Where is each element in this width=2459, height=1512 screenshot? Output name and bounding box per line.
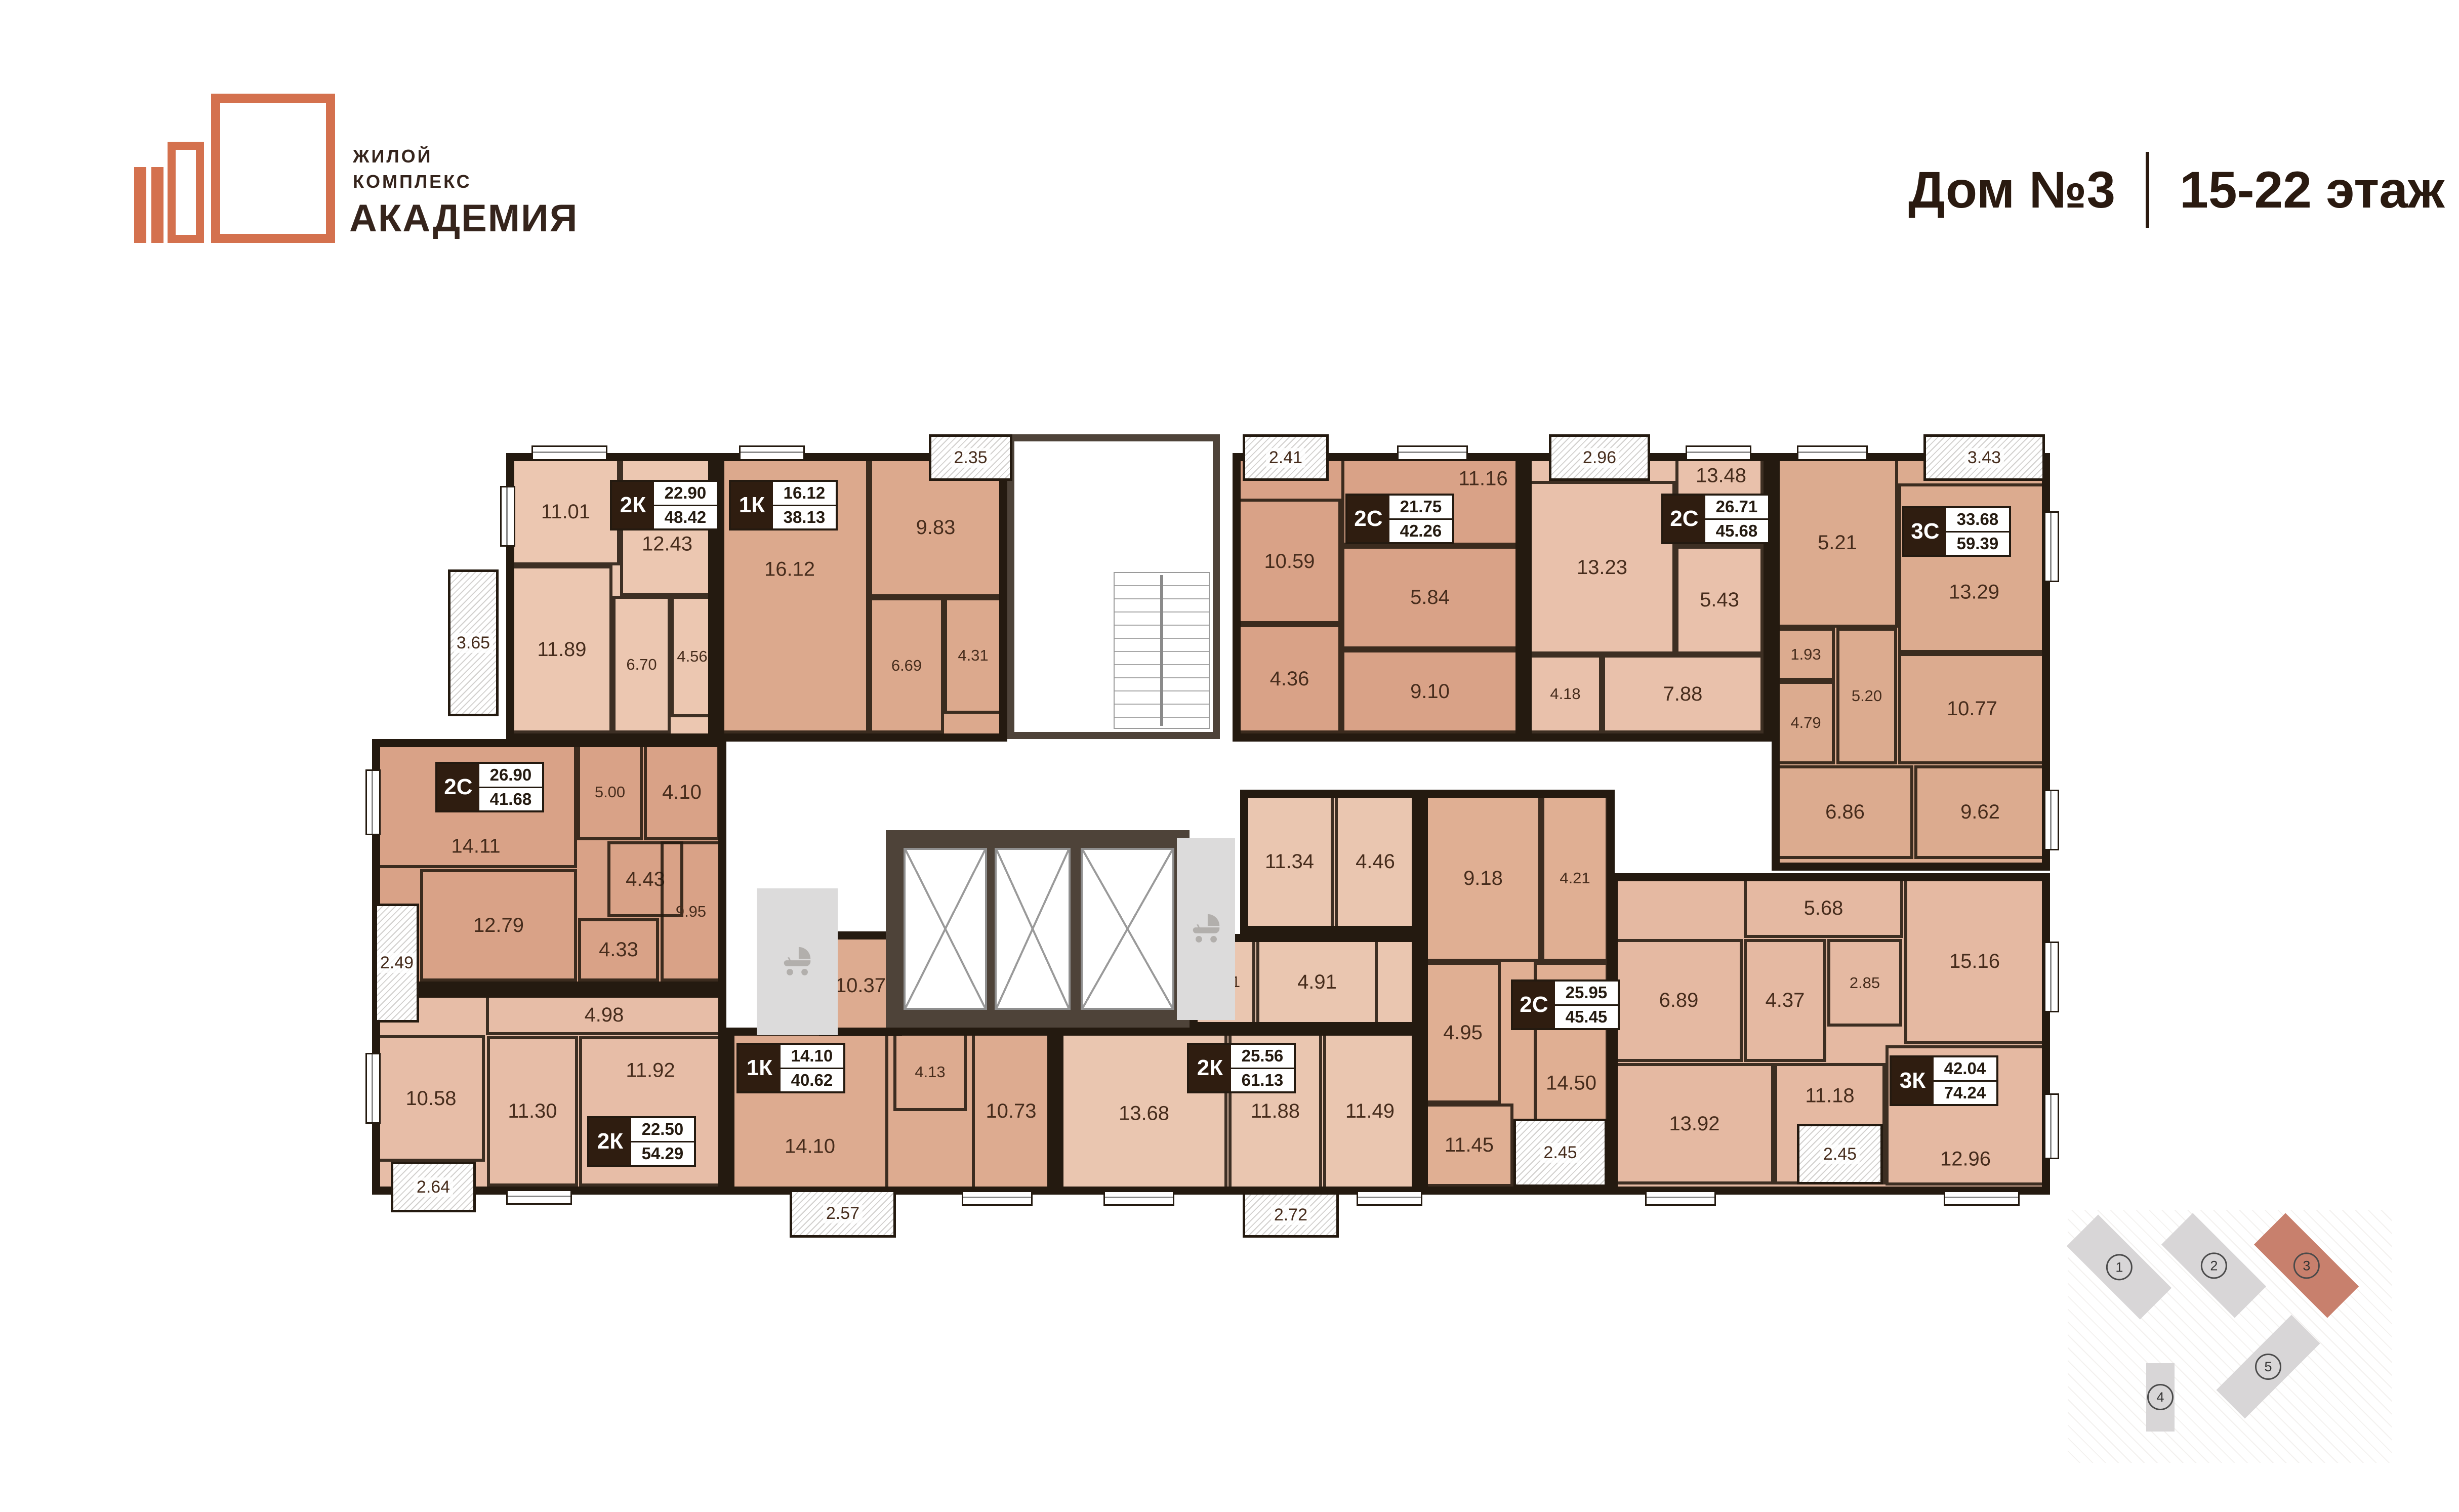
minimap-building-2[interactable]: 2 <box>2161 1213 2266 1318</box>
balcony-area-label: 2.41 <box>1266 448 1305 468</box>
window <box>962 1191 1033 1206</box>
room: 4.79 <box>1777 681 1835 764</box>
apartment-type-label: 2К <box>1189 1045 1231 1091</box>
window <box>2044 790 2059 850</box>
apartment-area-value: 22.90 <box>654 482 717 505</box>
room-area-label: 13.48 <box>1696 465 1746 487</box>
balcony-area-label: 2.49 <box>377 953 417 973</box>
apartment-type-label: 2С <box>437 764 479 810</box>
room-area-label: 10.59 <box>1264 550 1315 573</box>
room-area-label: 4.36 <box>1270 668 1309 690</box>
apartment-area-value: 41.68 <box>479 787 542 811</box>
room: 10.77 <box>1898 653 2046 764</box>
room-area-label: 11.45 <box>1445 1134 1494 1157</box>
room-area-label: 4.21 <box>1560 869 1590 887</box>
room-area-label: 13.23 <box>1577 556 1627 579</box>
room-area-label: 10.73 <box>986 1100 1036 1123</box>
apartment-type-label: 2С <box>1347 496 1389 542</box>
room-area-label: 15.16 <box>1949 950 2000 973</box>
window <box>1686 445 1751 461</box>
room-area-label: 5.84 <box>1410 586 1450 609</box>
minimap-building-number: 2 <box>2200 1252 2227 1279</box>
apartment-area-value: 74.24 <box>1934 1080 1996 1105</box>
balcony-area-label: 2.64 <box>414 1177 453 1197</box>
room-area-label: 14.10 <box>785 1135 835 1158</box>
apartment-type-label: 3С <box>1904 508 1946 555</box>
apartment-area-value: 38.13 <box>773 505 836 529</box>
room-area-label: 11.89 <box>537 638 586 661</box>
room: 9.10 <box>1341 649 1519 733</box>
stroller-zone <box>1177 838 1235 1020</box>
window <box>1797 445 1868 461</box>
room: 4.98 <box>486 995 722 1035</box>
room-area-label: 10.58 <box>405 1087 456 1110</box>
window <box>531 445 607 461</box>
room-area-label: 9.62 <box>1960 801 2000 824</box>
apartment-area-value: 26.71 <box>1705 496 1768 518</box>
window <box>365 1053 381 1124</box>
room: 10.58 <box>377 1035 485 1162</box>
apartment-type-label: 2С <box>1513 982 1555 1028</box>
room-area-label: 4.43 <box>626 868 665 891</box>
room-area-label: 4.31 <box>958 646 988 665</box>
balcony-area-label: 2.45 <box>1820 1145 1860 1164</box>
balcony: 2.49 <box>375 904 419 1023</box>
room-area-label: 11.49 <box>1345 1100 1395 1123</box>
apartment-area-value: 40.62 <box>781 1068 843 1092</box>
window <box>365 769 381 835</box>
room: 13.23 <box>1529 481 1675 655</box>
elevator-shaft[interactable] <box>904 848 987 1010</box>
balcony: 2.45 <box>1513 1119 1607 1187</box>
apartment-plaque-apt-2k-54[interactable]: 2К22.5054.29 <box>587 1116 696 1167</box>
apartment-plaque-apt-2c-46[interactable]: 2С26.7145.68 <box>1661 494 1770 544</box>
room-area-label: 4.33 <box>599 938 638 961</box>
window <box>2044 1093 2059 1159</box>
apartment-area-value: 22.50 <box>631 1118 694 1141</box>
room: 11.01 <box>511 458 620 565</box>
room-area-label: 4.56 <box>677 647 707 666</box>
apartment-area-value: 59.39 <box>1946 531 2009 555</box>
room: 5.00 <box>577 744 643 840</box>
room-area-label: 13.29 <box>1949 581 1999 604</box>
balcony-area-label: 2.72 <box>1271 1205 1310 1225</box>
room-area-label: 4.37 <box>1766 989 1805 1012</box>
room-area-label: 11.16 <box>1458 468 1507 491</box>
room: 4.18 <box>1529 655 1602 733</box>
room-area-label: 4.79 <box>1790 714 1821 732</box>
room: 11.34 <box>1245 795 1334 929</box>
window <box>1357 1191 1422 1206</box>
balcony-area-label: 2.35 <box>951 448 990 468</box>
balcony: 2.96 <box>1549 434 1650 481</box>
balcony: 2.35 <box>929 434 1012 481</box>
minimap-building-5[interactable]: 5 <box>2216 1315 2320 1418</box>
room-area-label: 6.89 <box>1659 989 1699 1012</box>
room-area-label: 9.83 <box>916 516 956 539</box>
room-area-label: 5.68 <box>1804 897 1843 920</box>
balcony: 2.45 <box>1797 1124 1883 1184</box>
room-area-label: 9.18 <box>1463 867 1503 890</box>
window <box>1103 1191 1174 1206</box>
room-area-label: 5.20 <box>1852 687 1882 705</box>
room-area-label: 13.92 <box>1669 1113 1719 1135</box>
room: 6.70 <box>612 596 671 733</box>
room-area-label: 4.10 <box>662 781 702 804</box>
site-minimap: 12345 <box>2068 1210 2392 1463</box>
room-area-label: 4.91 <box>1297 971 1337 994</box>
room: 11.45 <box>1425 1104 1513 1187</box>
room-area-label: 14.50 <box>1546 1072 1596 1095</box>
room-area-label: 11.34 <box>1265 850 1314 873</box>
room-area-label: 12.79 <box>473 914 524 937</box>
apartment-area-value: 45.68 <box>1705 518 1768 543</box>
balcony: 2.57 <box>790 1190 896 1238</box>
room-area-label: 6.86 <box>1825 801 1865 824</box>
room: 4.33 <box>578 918 659 982</box>
room-area-label: 12.96 <box>1940 1148 1991 1171</box>
balcony-area-label: 2.57 <box>823 1204 863 1223</box>
stroller-icon <box>1188 911 1224 947</box>
window <box>1645 1191 1716 1206</box>
balcony: 2.64 <box>391 1162 476 1212</box>
room: 4.13 <box>893 1033 967 1111</box>
room: 1.93 <box>1777 628 1835 681</box>
room: 5.68 <box>1744 878 1903 938</box>
room: 13.92 <box>1615 1063 1774 1184</box>
room: 10.73 <box>972 1033 1050 1190</box>
room-area-label: 16.12 <box>764 558 815 581</box>
room: 4.10 <box>644 744 720 840</box>
window <box>739 445 805 461</box>
minimap-building-number: 1 <box>2106 1254 2132 1280</box>
room-area-label: 9.95 <box>676 903 706 921</box>
room-area-label: 4.13 <box>915 1063 945 1081</box>
room: 5.20 <box>1836 628 1897 764</box>
apartment-type-label: 2К <box>612 482 654 528</box>
room-area-label: 4.18 <box>1550 685 1580 703</box>
apartment-area-value: 45.45 <box>1555 1004 1618 1029</box>
room-area-label: 11.01 <box>541 501 590 523</box>
room: 12.79 <box>420 869 577 982</box>
room-area-label: 12.43 <box>642 533 692 556</box>
window <box>500 486 515 547</box>
apartment-plaque-apt-1k-38[interactable]: 1К16.1238.13 <box>729 480 838 530</box>
room-area-label: 13.68 <box>1119 1102 1169 1125</box>
apartment-area-value: 61.13 <box>1231 1068 1294 1092</box>
room: 6.89 <box>1615 939 1743 1062</box>
apartment-area-value: 26.90 <box>479 764 542 787</box>
room: 5.21 <box>1777 458 1898 628</box>
minimap-building-number: 5 <box>2255 1354 2281 1380</box>
room-area-label: 9.10 <box>1410 680 1450 703</box>
balcony: 2.72 <box>1243 1192 1339 1238</box>
apartment-plaque-apt-2c-41[interactable]: 2С26.9041.68 <box>435 762 544 812</box>
room: 10.59 <box>1238 499 1341 624</box>
apartment-area-value: 54.29 <box>631 1141 694 1165</box>
room: 11.30 <box>487 1036 578 1187</box>
apartment-area-value: 16.12 <box>773 482 836 505</box>
elevator-shaft[interactable] <box>1081 848 1174 1010</box>
apartment-type-label: 2С <box>1663 496 1705 542</box>
room: 11.89 <box>511 565 612 733</box>
room: 4.21 <box>1541 795 1609 962</box>
room: 9.95 <box>661 841 721 982</box>
room: 4.95 <box>1425 962 1501 1104</box>
balcony-area-label: 3.65 <box>454 633 493 653</box>
apartment-area-value: 33.68 <box>1946 508 2009 531</box>
stroller-zone <box>757 888 838 1035</box>
room-area-label: 4.98 <box>585 1004 624 1027</box>
room-area-label: 7.88 <box>1663 683 1703 706</box>
apartment-type-label: 1К <box>731 482 773 528</box>
room: 15.16 <box>1904 878 2045 1044</box>
room: 4.91 <box>1256 939 1378 1025</box>
room-area-label: 5.00 <box>595 783 625 801</box>
apartment-type-label: 2К <box>589 1118 631 1165</box>
room: 6.86 <box>1777 765 1913 859</box>
room: 4.36 <box>1238 624 1341 733</box>
apartment-area-value: 25.95 <box>1555 982 1618 1004</box>
balcony: 3.43 <box>1923 434 2045 481</box>
balcony-area-label: 2.96 <box>1580 448 1619 468</box>
minimap-building-3[interactable]: 3 <box>2253 1213 2358 1318</box>
balcony-area-label: 3.43 <box>1964 448 2004 468</box>
apartment-plaque-apt-2c-45[interactable]: 2С25.9545.45 <box>1511 979 1620 1030</box>
stroller-icon <box>780 944 815 979</box>
window <box>1397 445 1468 461</box>
apartment-area-value: 25.56 <box>1231 1045 1294 1068</box>
room: 9.62 <box>1914 765 2046 859</box>
elevator-shaft[interactable] <box>995 848 1071 1010</box>
room-area-label: 6.69 <box>891 657 922 675</box>
room: 9.18 <box>1425 795 1541 962</box>
balcony: 3.65 <box>448 569 499 716</box>
room: 4.56 <box>671 596 714 717</box>
room-area-label: 4.46 <box>1356 850 1395 873</box>
window <box>2044 942 2059 1012</box>
minimap-building-4[interactable]: 4 <box>2146 1363 2175 1432</box>
room-area-label: 14.11 <box>451 835 500 858</box>
room: 7.88 <box>1602 655 1764 733</box>
room-area-label: 11.30 <box>508 1100 557 1123</box>
balcony: 2.41 <box>1243 434 1329 481</box>
window <box>1944 1191 2020 1206</box>
apartment-area-value: 21.75 <box>1389 496 1452 518</box>
room: 4.31 <box>944 597 1002 714</box>
apartment-type-label: 3К <box>1892 1057 1934 1104</box>
room-area-label: 10.77 <box>1947 698 1997 720</box>
apartment-plaque-apt-3c-59[interactable]: 3С33.6859.39 <box>1902 506 2011 557</box>
minimap-building-number: 3 <box>2293 1252 2319 1279</box>
apartment-area-value: 42.26 <box>1389 518 1452 543</box>
room-area-label: 5.43 <box>1700 589 1739 611</box>
apartment-plaque-apt-2c-42[interactable]: 2С21.7542.26 <box>1345 494 1454 544</box>
room: 11.49 <box>1323 1033 1417 1190</box>
room: 5.84 <box>1341 546 1519 649</box>
minimap-building-number: 4 <box>2147 1384 2174 1410</box>
room-area-label: 6.70 <box>626 656 657 674</box>
room: 4.46 <box>1335 795 1416 929</box>
room-area-label: 1.93 <box>1790 645 1821 664</box>
window <box>2044 511 2059 582</box>
room-area-label: 4.95 <box>1443 1021 1483 1044</box>
window <box>506 1190 572 1205</box>
apartment-plaque-apt-2k-61[interactable]: 2К25.5661.13 <box>1187 1043 1296 1093</box>
minimap-building-1[interactable]: 1 <box>2066 1214 2171 1319</box>
room: 5.43 <box>1675 546 1764 655</box>
room-area-label: 11.92 <box>626 1059 675 1082</box>
apartment-plaque-apt-3k-74[interactable]: 3К42.0474.24 <box>1890 1055 1998 1106</box>
staircase-divider <box>1160 575 1163 726</box>
balcony-area-label: 2.45 <box>1540 1143 1580 1163</box>
apartment-area-value: 14.10 <box>781 1045 843 1068</box>
room-area-label: 11.18 <box>1805 1085 1854 1108</box>
room-area-label: 5.21 <box>1818 532 1857 554</box>
room-area-label: 2.85 <box>1850 974 1880 992</box>
apartment-area-value: 42.04 <box>1934 1057 1996 1080</box>
apartment-plaque-apt-2k-48[interactable]: 2К22.9048.42 <box>610 480 719 530</box>
room: 4.37 <box>1744 939 1826 1062</box>
room-area-label: 11.88 <box>1251 1100 1300 1123</box>
room: 6.69 <box>869 597 944 733</box>
apartment-plaque-apt-1k-40[interactable]: 1К14.1040.62 <box>736 1043 845 1093</box>
apartment-area-value: 48.42 <box>654 505 717 529</box>
room: 2.85 <box>1827 939 1902 1027</box>
room-area-label: 10.37 <box>835 974 886 997</box>
apartment-type-label: 1К <box>739 1045 781 1091</box>
